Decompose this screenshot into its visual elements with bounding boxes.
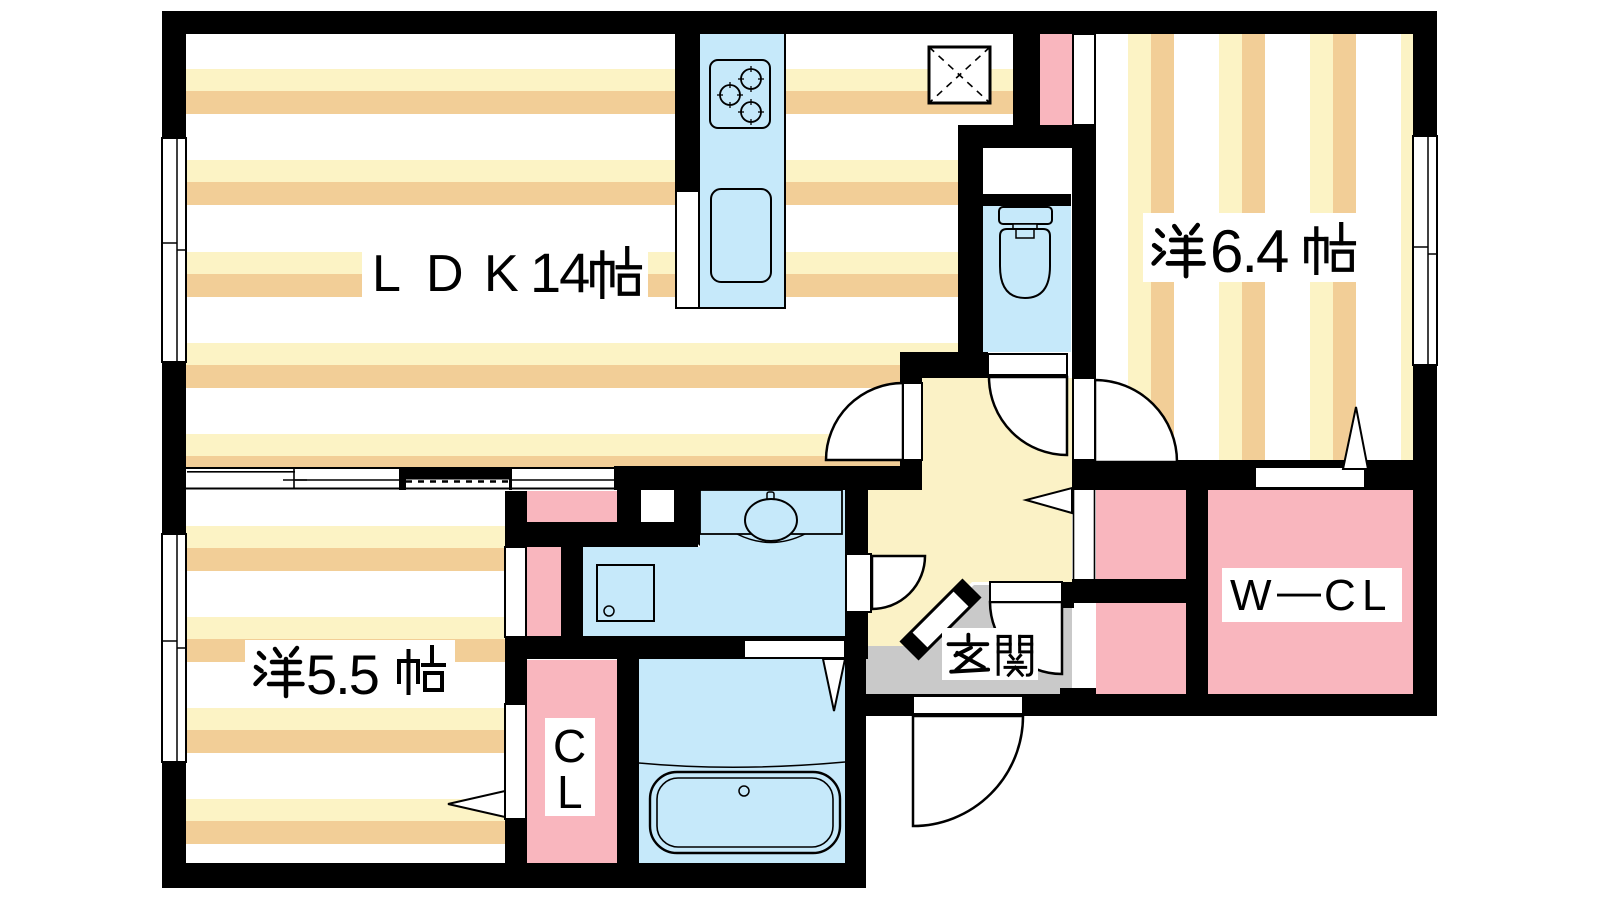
- svg-text:C: C: [553, 720, 586, 772]
- svg-text:5.5: 5.5: [306, 643, 378, 706]
- svg-text:W: W: [1230, 571, 1272, 620]
- svg-text:6.4: 6.4: [1210, 218, 1288, 285]
- svg-text:C: C: [1324, 571, 1356, 620]
- svg-text:L: L: [557, 766, 583, 818]
- svg-text:L: L: [372, 245, 401, 303]
- svg-text:—: —: [1277, 567, 1321, 616]
- svg-text:L: L: [1362, 571, 1386, 620]
- svg-text:K: K: [484, 245, 519, 303]
- svg-text:D: D: [426, 245, 464, 303]
- svg-text:14: 14: [530, 241, 589, 304]
